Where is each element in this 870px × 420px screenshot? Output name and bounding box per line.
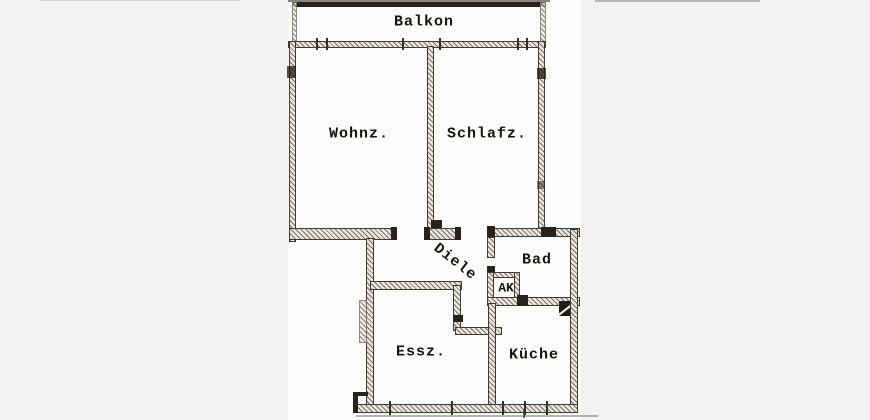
flue-mark bbox=[541, 227, 556, 237]
room-label-balkon: Balkon bbox=[394, 14, 454, 31]
window-mark-left-wall bbox=[287, 66, 296, 78]
wall-outer-left-lower bbox=[366, 238, 374, 413]
wall-bad-top bbox=[487, 228, 580, 237]
window-tick bbox=[517, 38, 519, 50]
wall-bad-left-upper bbox=[487, 237, 495, 258]
wall-divider-wohnz-schlafz bbox=[427, 46, 434, 233]
door-post bbox=[517, 295, 528, 306]
wall-middle-left-segment bbox=[289, 228, 397, 240]
room-label-kueche: Küche bbox=[509, 347, 559, 364]
floor-plan: Balkon Wohnz. Schlafz. Diele Bad AK Essz… bbox=[0, 0, 870, 420]
window-tick bbox=[526, 38, 528, 50]
room-label-wohnz: Wohnz. bbox=[329, 126, 389, 143]
window-mark-right-wall bbox=[537, 181, 545, 189]
wall-corridor-left bbox=[453, 285, 461, 331]
window-tick bbox=[502, 401, 504, 415]
wall-balcony-right bbox=[540, 2, 546, 45]
window-tick bbox=[316, 38, 318, 50]
wall-outer-right-lower bbox=[570, 229, 578, 413]
door-post bbox=[455, 227, 461, 240]
door-post bbox=[453, 315, 463, 322]
window-tick bbox=[451, 401, 453, 415]
window-tick bbox=[402, 38, 404, 50]
window-tick bbox=[326, 38, 328, 50]
window-mark-right-wall bbox=[537, 68, 546, 79]
dimension-tick bbox=[523, 409, 525, 418]
window-tick bbox=[546, 401, 548, 415]
window-tick bbox=[389, 401, 391, 415]
door-post bbox=[391, 227, 397, 240]
wall-balcony-top bbox=[292, 2, 546, 7]
room-label-ak: AK bbox=[498, 281, 514, 296]
room-label-schlafz: Schlafz. bbox=[447, 126, 527, 143]
door-post bbox=[424, 227, 430, 240]
scan-artifact-top-left bbox=[40, 0, 240, 1]
window-tick bbox=[439, 38, 441, 50]
room-label-essz: Essz. bbox=[396, 344, 446, 361]
room-label-bad: Bad bbox=[522, 252, 552, 269]
wall-foot-top bbox=[353, 392, 368, 396]
wall-divider-essz-kueche bbox=[488, 303, 496, 413]
scan-artifact-top-right bbox=[595, 0, 760, 2]
wall-essz-top bbox=[370, 281, 462, 290]
window-essz-left bbox=[359, 300, 367, 343]
dimension-line-bottom bbox=[356, 415, 598, 417]
wall-balcony-left bbox=[292, 2, 297, 45]
